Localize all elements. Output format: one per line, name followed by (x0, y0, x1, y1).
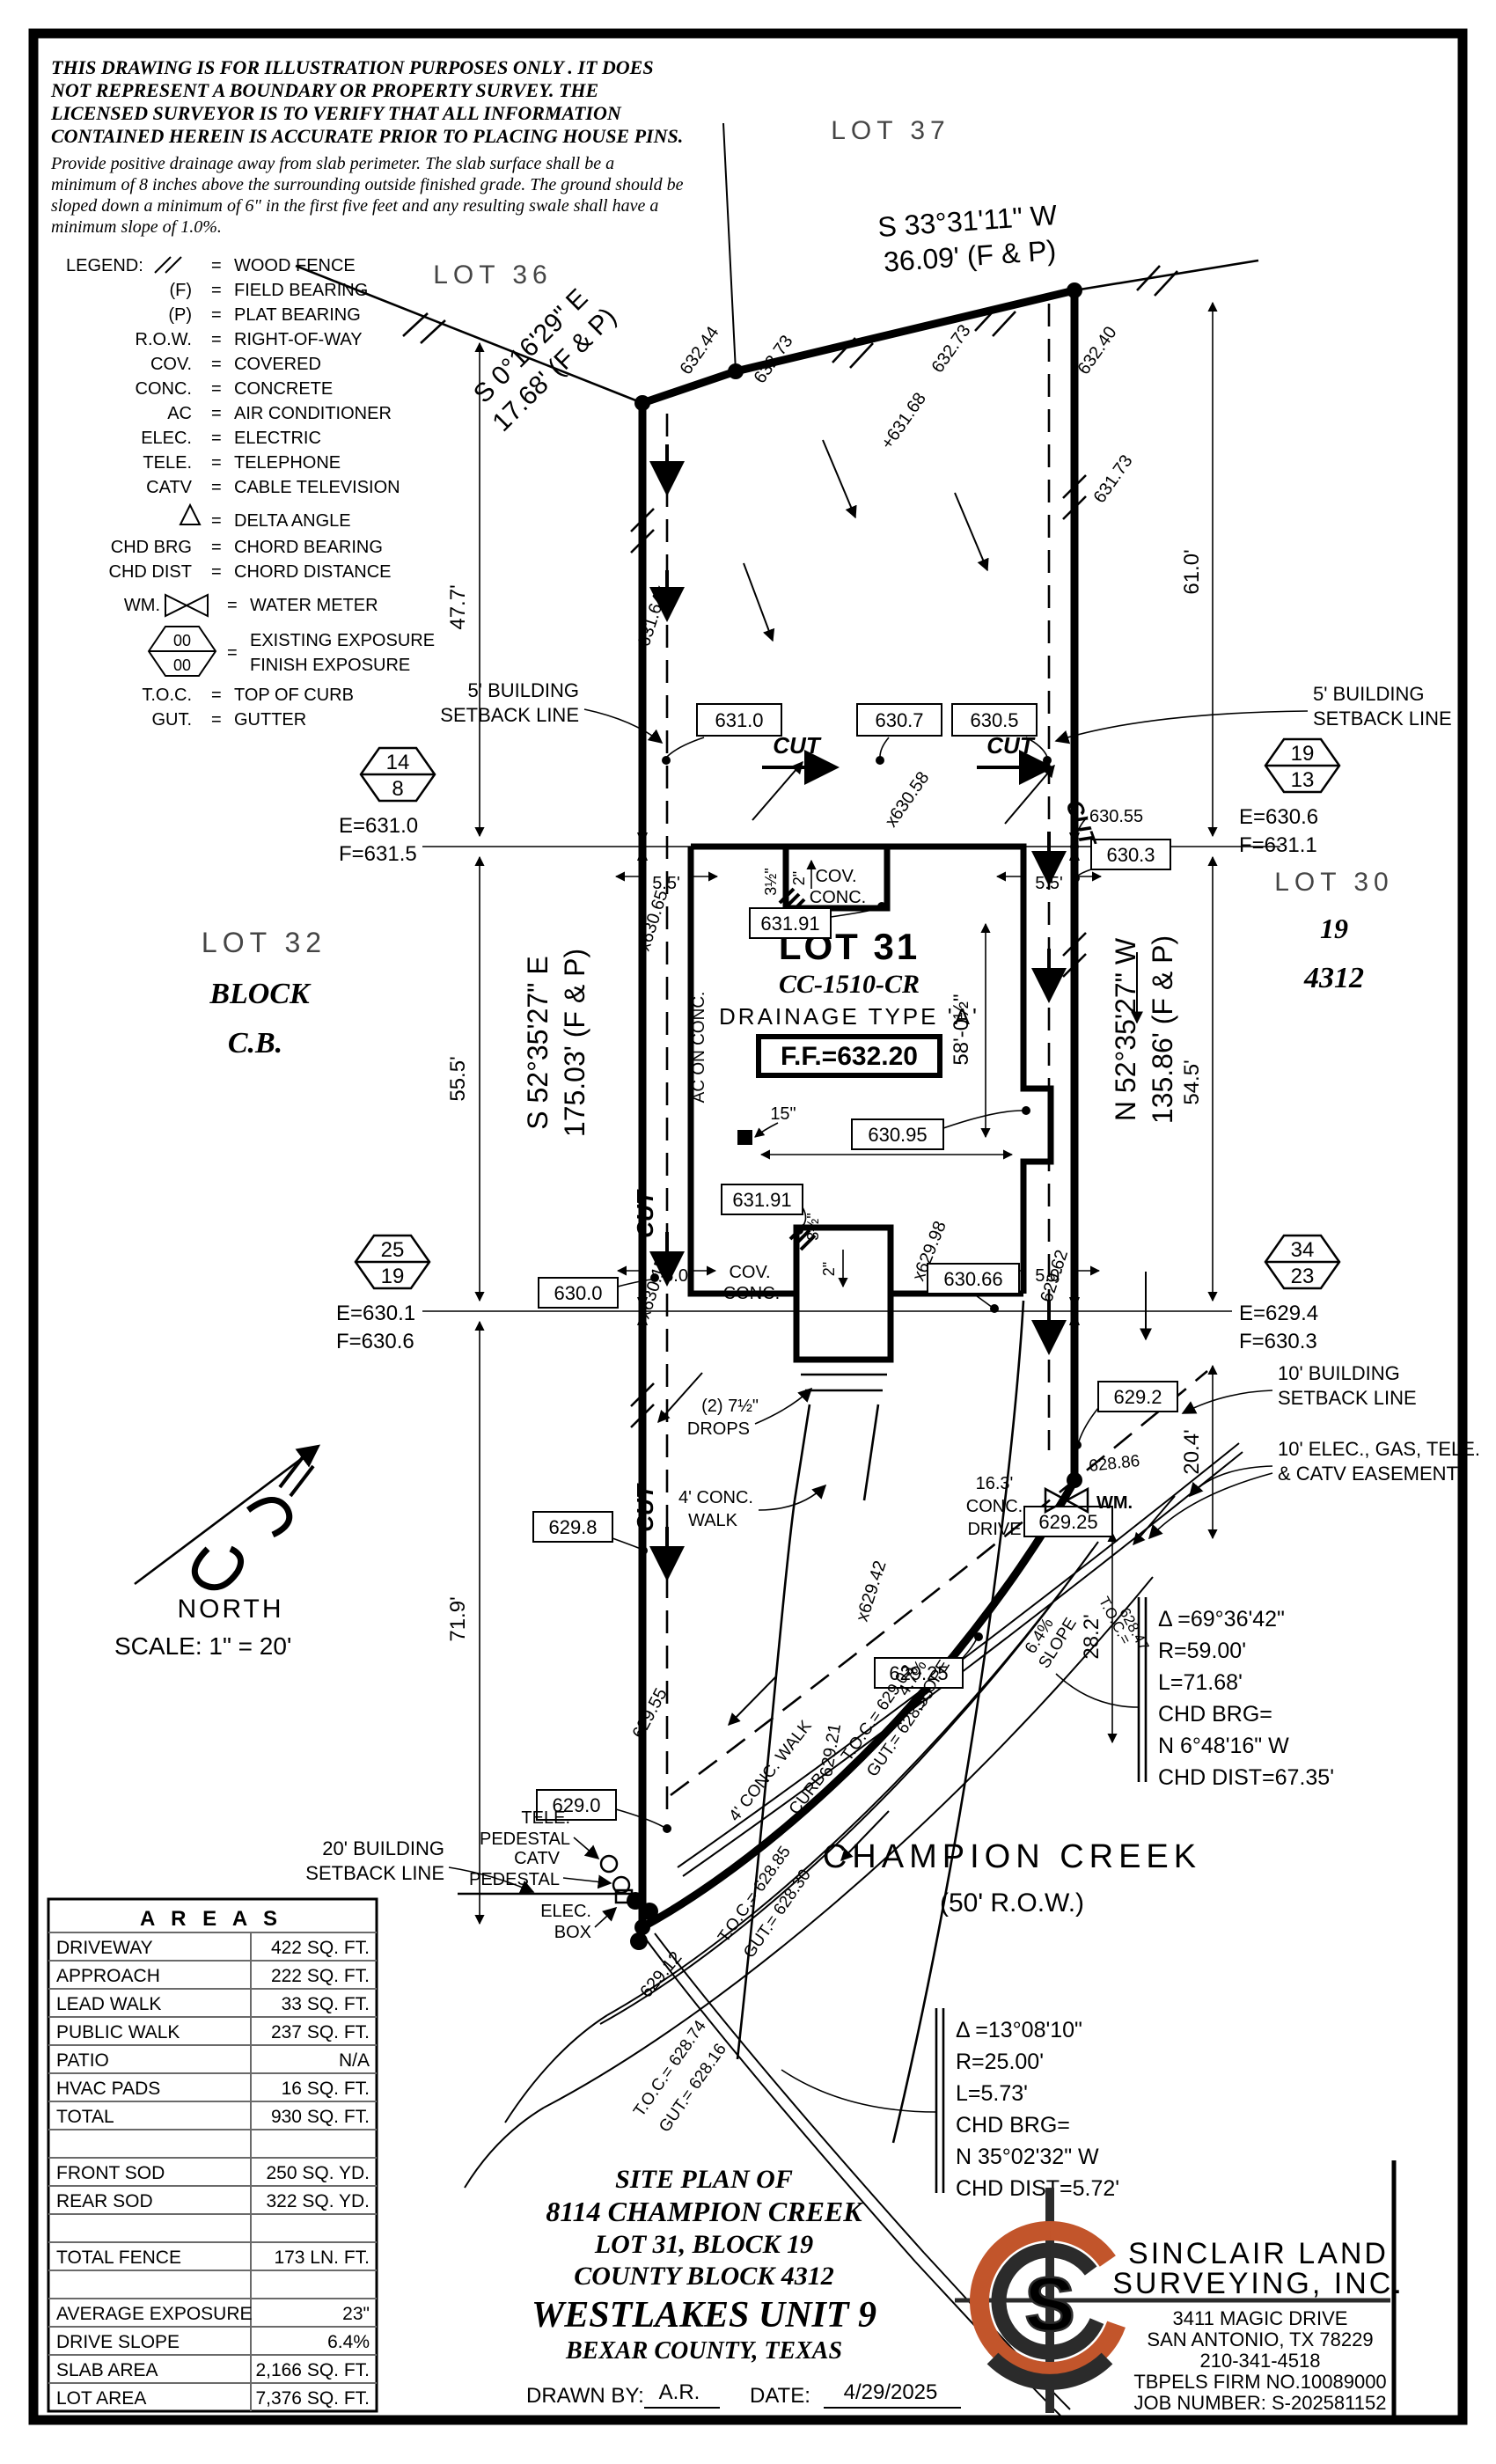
elec-label-1: ELEC. (540, 1902, 591, 1921)
legend-eq-9: = (211, 478, 222, 497)
lot30-block: 19 (1320, 913, 1348, 944)
setback10-2: SETBACK LINE (1278, 1387, 1417, 1409)
cut-label-2: CUT (986, 732, 1036, 759)
dim-58-0: 58'-0½" (950, 994, 973, 1065)
setback5-right-2: SETBACK LINE (1313, 708, 1452, 730)
spot-631-73: 631.73 (1090, 451, 1137, 507)
curve1-length: L=71.68' (1158, 1670, 1243, 1695)
wm-label: WM. (1096, 1493, 1133, 1513)
drive-label-1: 16.3' (976, 1474, 1014, 1493)
steps-and-leadwalk (795, 1375, 887, 1500)
hex4-top: 34 (1291, 1238, 1315, 1262)
legend-eq-12: = (211, 562, 222, 582)
lot32-label: LOT 32 (202, 927, 326, 958)
scale-label: SCALE: 1" = 20' (114, 1632, 291, 1660)
setback5-right-1: 5' BUILDING (1313, 683, 1424, 705)
water-meter-icon (165, 595, 208, 616)
legend-eq-13: = (227, 596, 238, 615)
areas-r16-l: LOT AREA (56, 2388, 146, 2409)
legend-label-5: CONCRETE (234, 379, 333, 399)
title-line-6: BEXAR COUNTY, TEXAS (565, 2337, 842, 2365)
hex-19-13: 1913 E=630.6F=631.1 (1239, 739, 1339, 857)
dim-61-0: 61.0' (1180, 549, 1204, 594)
easement10-1: 10' ELEC., GAS, TELE. (1278, 1438, 1480, 1460)
title-line-1: SITE PLAN OF (615, 2165, 793, 2194)
legend-label-0: WOOD FENCE (234, 256, 356, 275)
hex3-top: 25 (381, 1238, 405, 1262)
curve1-brg-label: CHD BRG= (1158, 1702, 1272, 1727)
street-row: (50' R.O.W.) (940, 1888, 1084, 1918)
areas-r4-l: PATIO (56, 2050, 109, 2071)
areas-r2-l: LEAD WALK (56, 1994, 161, 2014)
hex4-f: F=630.3 (1239, 1330, 1317, 1353)
legend-eq-6: = (211, 404, 222, 423)
curve1-chd-dist: CHD DIST=67.35' (1158, 1765, 1334, 1790)
curve2-chd-dist: CHD DIST=5.72' (956, 2176, 1119, 2201)
tele-label-1: TELE. (521, 1808, 570, 1828)
legend-hex-bot: 00 (173, 656, 191, 674)
bearing-top-right: S 33°31'11" W 36.09' (F & P) (876, 199, 1061, 278)
drawn-by-label: DRAWN BY: (526, 2384, 644, 2408)
areas-r13-l: AVERAGE EXPOSURE (56, 2304, 253, 2324)
areas-r6-l: TOTAL (56, 2107, 114, 2127)
curve1-brg-value: N 6°48'16" W (1158, 1734, 1289, 1758)
spot-629-42: x629.42 (853, 1558, 891, 1624)
areas-r2-v: 33 SQ. FT. (282, 1994, 370, 2014)
company-addr-1: 3411 MAGIC DRIVE (1173, 2307, 1348, 2329)
legend-label-15: FINISH EXPOSURE (250, 656, 410, 675)
title-line-3: LOT 31, BLOCK 19 (594, 2230, 813, 2259)
disclaimer-line-2: NOT REPRESENT A BOUNDARY OR PROPERTY SUR… (50, 79, 598, 101)
legend-eq-17: = (211, 710, 222, 730)
cov-bot-1: COV. (729, 1263, 770, 1282)
spot-630-58: x630.58 (882, 768, 934, 831)
catv-label-2: PEDESTAL (469, 1870, 560, 1889)
spot-630-7: 630.7 (875, 709, 923, 731)
hex2-f: F=631.1 (1239, 833, 1317, 857)
site-plan-drawing: THIS DRAWING IS FOR ILLUSTRATION PURPOSE… (0, 0, 1496, 2464)
hex2-e: E=630.6 (1239, 805, 1318, 829)
wood-fence-icon (155, 257, 181, 273)
curve2-radius: R=25.00' (956, 2050, 1044, 2074)
legend-label-13: WATER METER (250, 596, 378, 615)
legend-abbr-13: WM. (124, 596, 160, 615)
areas-r5-l: HVAC PADS (56, 2079, 160, 2099)
areas-r4-v: N/A (339, 2050, 370, 2071)
setback20-2: SETBACK LINE (305, 1862, 444, 1884)
areas-r11-l: TOTAL FENCE (56, 2248, 181, 2268)
areas-r5-v: 16 SQ. FT. (282, 2079, 370, 2099)
company-addr-2: SAN ANTONIO, TX 78229 (1147, 2328, 1373, 2350)
curve-data-2: Δ =13°08'10" R=25.00' L=5.73' CHD BRG= N… (781, 2008, 1119, 2201)
ac-on-conc-label: AC ON CONC. (690, 992, 708, 1104)
title-line-5: WESTLAKES UNIT 9 (532, 2295, 876, 2336)
drops-label-1: (2) 7½" (701, 1397, 759, 1416)
lot30-label: LOT 30 (1274, 868, 1394, 897)
dim-54-5: 54.5' (1180, 1060, 1204, 1104)
utility-pedestals: TELE. PEDESTAL CATV PEDESTAL ELEC. BOX (469, 1808, 658, 1950)
areas-r0-v: 422 SQ. FT. (271, 1938, 370, 1958)
lot31-plan-code: CC-1510-CR (779, 970, 920, 999)
legend: LEGEND: =WOOD FENCE (F)=FIELD BEARING (P… (66, 256, 435, 730)
elec-label-2: BOX (554, 1923, 591, 1942)
setback5-left-1: 5' BUILDING (468, 679, 579, 701)
disclaimer-text: THIS DRAWING IS FOR ILLUSTRATION PURPOSE… (50, 56, 683, 147)
company-info: SINCLAIR LAND SURVEYING, INC. 3411 MAGIC… (1112, 2160, 1404, 2418)
note-line-4: minimum slope of 1.0%. (51, 217, 222, 237)
spot-632-44: 632.44 (677, 323, 723, 378)
legend-label-7: ELECTRIC (234, 429, 321, 448)
legend-label-1: FIELD BEARING (234, 281, 368, 300)
drops-label-2: DROPS (687, 1419, 750, 1439)
spot-629-55: 629.55 (629, 1685, 671, 1742)
areas-r3-l: PUBLIC WALK (56, 2022, 180, 2042)
legend-abbr-6: AC (167, 404, 192, 423)
hex-14-8: 148 E=631.0F=631.5 (339, 748, 435, 866)
dim-15in: 15" (770, 1104, 796, 1124)
areas-r6-v: 930 SQ. FT. (271, 2107, 370, 2127)
company-firm-no: TBPELS FIRM NO.10089000 (1133, 2371, 1386, 2393)
title-block: SITE PLAN OF 8114 CHAMPION CREEK LOT 31,… (526, 2165, 961, 2408)
areas-r9-v: 322 SQ. YD. (266, 2191, 370, 2211)
bearing-w-2: 175.03' (F & P) (559, 949, 590, 1137)
setback5-left-2: SETBACK LINE (440, 704, 579, 726)
legend-abbr-7: ELEC. (141, 429, 192, 448)
north-label: NORTH (177, 1595, 283, 1624)
curve2-brg-label: CHD BRG= (956, 2113, 1070, 2138)
lot37-label: LOT 37 (831, 116, 950, 145)
legend-eq-16: = (211, 686, 222, 705)
hex-25-19: 2519 E=630.1F=630.6 (336, 1236, 429, 1353)
spot-630-5: 630.5 (970, 709, 1018, 731)
three-half-top: 3½" (762, 868, 780, 895)
areas-r1-l: APPROACH (56, 1966, 160, 1986)
areas-r1-v: 222 SQ. FT. (271, 1966, 370, 1986)
curve1-radius: R=59.00' (1158, 1639, 1246, 1663)
hex1-f: F=631.5 (339, 842, 417, 866)
spot-630-55: 630.55 (1089, 807, 1143, 826)
legend-eq-4: = (211, 355, 222, 374)
hex4-bot: 23 (1291, 1265, 1315, 1288)
cut-label-1: CUT (773, 732, 822, 759)
tele-label-2: PEDESTAL (480, 1830, 570, 1849)
survey-sheet: THIS DRAWING IS FOR ILLUSTRATION PURPOSE… (0, 0, 1496, 2464)
legend-abbr-4: COV. (150, 355, 192, 374)
areas-r16-v: 7,376 SQ. FT. (255, 2388, 370, 2409)
hex-34-23: 3423 E=629.4F=630.3 (1239, 1236, 1339, 1353)
legend-label-4: COVERED (234, 355, 321, 374)
legend-abbr-2: (P) (168, 305, 192, 325)
legend-abbr-3: R.O.W. (136, 330, 192, 349)
disclaimer-line-3: LICENSED SURVEYOR IS TO VERIFY THAT ALL … (50, 102, 622, 124)
legend-eq-2: = (211, 305, 222, 325)
areas-r8-v: 250 SQ. YD. (266, 2163, 370, 2183)
walk-label-2: WALK (688, 1511, 738, 1530)
areas-title: A R E A S (140, 1907, 282, 1931)
cut-label-5: CUT (632, 1483, 658, 1532)
catv-label-1: CATV (514, 1849, 561, 1868)
legend-eq-5: = (211, 379, 222, 399)
exposure-hex-icon: 00 00 (149, 627, 216, 676)
legend-abbr-1: (F) (169, 281, 192, 300)
setback20-1: 20' BUILDING (322, 1837, 444, 1859)
drawn-by-value: A.R. (659, 2380, 700, 2404)
dim-20-4: 20.4' (1180, 1429, 1204, 1474)
spot-629-8: 629.8 (548, 1516, 597, 1538)
legend-eq-10: = (211, 511, 222, 531)
wall-hatch-15in (737, 1130, 752, 1145)
north-arrow (135, 1446, 319, 1588)
bearing-e-2: 135.86' (F & P) (1147, 935, 1178, 1124)
areas-r14-l: DRIVE SLOPE (56, 2332, 180, 2352)
areas-table: A R E A S DRIVEWAY422 SQ. FT. APPROACH22… (48, 1899, 377, 2411)
hex2-bot: 13 (1291, 768, 1315, 792)
cov-top-2: CONC. (810, 888, 866, 907)
tele-pedestal-icon (601, 1856, 617, 1872)
bearing-w-1: S 52°35'27" E (522, 956, 554, 1130)
setback10-1: 10' BUILDING (1278, 1362, 1400, 1384)
two-in-bot: 2" (820, 1262, 838, 1276)
lot36-label: LOT 36 (433, 260, 553, 290)
spot-630-0: 630.0 (554, 1282, 602, 1304)
date-label: DATE: (750, 2384, 810, 2408)
curve2-brg-value: N 35°02'32" W (956, 2145, 1099, 2169)
hex3-bot: 19 (381, 1265, 405, 1288)
legend-abbr-16: T.O.C. (142, 686, 192, 705)
legend-label-8: TELEPHONE (234, 453, 341, 473)
spot-629-2: 629.2 (1113, 1386, 1162, 1408)
title-line-4: COUNTY BLOCK 4312 (574, 2262, 834, 2291)
drive-label-3: DRIVE (967, 1520, 1021, 1539)
street-name: CHAMPION CREEK (823, 1838, 1201, 1875)
three-half-bot: 3½" (804, 1213, 822, 1240)
legend-label-10: DELTA ANGLE (234, 511, 351, 531)
legend-abbr-12: CHD DIST (109, 562, 192, 582)
legend-label-3: RIGHT-OF-WAY (234, 330, 363, 349)
drive-label-2: CONC. (966, 1497, 1023, 1516)
areas-r15-l: SLAB AREA (56, 2360, 158, 2380)
legend-abbr-11: CHD BRG (111, 538, 192, 557)
spot-631-0: 631.0 (715, 709, 763, 731)
two-in-top: 2" (790, 871, 808, 885)
legend-label-6: AIR CONDITIONER (234, 404, 392, 423)
legend-abbr-8: TELE. (143, 453, 192, 473)
hex3-e: E=630.1 (336, 1302, 415, 1325)
spot-631-91-top: 631.91 (760, 913, 819, 935)
ff-elevation: F.F.=632.20 (781, 1042, 918, 1071)
lot30-county-block: 4312 (1303, 962, 1364, 994)
legend-title: LEGEND: (66, 256, 143, 275)
dim-55-5: 55.5' (446, 1056, 470, 1101)
legend-eq-0: = (211, 256, 222, 275)
easement10-2: & CATV EASEMENT (1278, 1463, 1458, 1485)
dim-47-7: 47.7' (446, 584, 470, 629)
legend-eq-7: = (211, 429, 222, 448)
legend-eq-3: = (211, 330, 222, 349)
hex1-top: 14 (386, 751, 410, 774)
date-value: 4/29/2025 (844, 2380, 938, 2404)
disclaimer-line-4: CONTAINED HEREIN IS ACCURATE PRIOR TO PL… (51, 125, 683, 147)
hex1-bot: 8 (392, 777, 403, 801)
legend-eq-8: = (211, 453, 222, 473)
legend-label-12: CHORD DISTANCE (234, 562, 392, 582)
areas-r3-v: 237 SQ. FT. (271, 2022, 370, 2042)
lot31-drainage-type: DRAINAGE TYPE 'A' (719, 1003, 979, 1030)
legend-label-11: CHORD BEARING (234, 538, 383, 557)
company-job-number: JOB NUMBER: S-202581152 (1134, 2392, 1387, 2414)
legend-hex-top: 00 (173, 632, 191, 649)
curve1-delta: Δ =69°36'42" (1158, 1607, 1285, 1632)
areas-r14-v: 6.4% (327, 2332, 370, 2352)
lot32-block: BLOCK (209, 978, 312, 1010)
legend-abbr-9: CATV (146, 478, 193, 497)
hex1-e: E=631.0 (339, 814, 418, 838)
spot-628-86: 628.86 (1088, 1452, 1140, 1476)
bearing-top-left: S 0°16'29" E 17.68' (F & P) (464, 279, 622, 437)
cut-label-4: CUT (632, 1189, 658, 1238)
note-line-2: minimum of 8 inches above the surroundin… (51, 175, 684, 194)
spot-632-40: 632.40 (1074, 323, 1121, 378)
note-line-1: Provide positive drainage away from slab… (50, 154, 614, 173)
legend-eq-1: = (211, 281, 222, 300)
drainage-note: Provide positive drainage away from slab… (50, 154, 684, 237)
cov-bot-2: CONC. (723, 1284, 780, 1303)
logo-s-letter: S (1024, 2262, 1074, 2347)
lot32-cb: C.B. (228, 1027, 282, 1060)
legend-label-17: GUTTER (234, 710, 306, 730)
note-line-3: sloped down a minimum of 6" in the first… (51, 196, 658, 216)
areas-r8-l: FRONT SOD (56, 2163, 165, 2183)
areas-r0-l: DRIVEWAY (56, 1938, 153, 1958)
hex3-f: F=630.6 (336, 1330, 414, 1353)
spot-630-3: 630.3 (1106, 844, 1155, 866)
company-name-2: SURVEYING, INC. (1112, 2267, 1404, 2300)
walk-label-1: 4' CONC. (678, 1488, 753, 1507)
cov-top-1: COV. (815, 867, 856, 886)
curve2-delta: Δ =13°08'10" (956, 2018, 1082, 2042)
legend-label-2: PLAT BEARING (234, 305, 361, 325)
slope-64: 6.4%SLOPE (1019, 1604, 1081, 1672)
spot-632-73b: 632.73 (928, 321, 975, 377)
spot-631-68: +631.68 (877, 389, 930, 452)
legend-abbr-5: CONC. (136, 379, 192, 399)
bearing-east: N 52°35'27" W 135.86' (F & P) (1110, 935, 1178, 1124)
dim-71-9: 71.9' (446, 1596, 470, 1641)
company-name-1: SINCLAIR LAND (1128, 2237, 1389, 2270)
areas-r9-l: REAR SOD (56, 2191, 153, 2211)
legend-label-16: TOP OF CURB (234, 686, 354, 705)
legend-eq-14: = (227, 643, 238, 663)
spot-631-91-bottom: 631.91 (732, 1189, 791, 1211)
legend-label-14: EXISTING EXPOSURE (250, 631, 435, 650)
legend-eq-11: = (211, 538, 222, 557)
title-line-2: 8114 CHAMPION CREEK (546, 2196, 864, 2227)
company-phone: 210-341-4518 (1199, 2350, 1320, 2372)
curve2-length: L=5.73' (956, 2081, 1028, 2106)
areas-r11-v: 173 LN. FT. (274, 2248, 370, 2268)
bearing-west: S 52°35'27" E 175.03' (F & P) (522, 949, 590, 1137)
hex4-e: E=629.4 (1239, 1302, 1318, 1325)
areas-r13-v: 23" (342, 2304, 370, 2324)
delta-angle-icon (180, 505, 200, 524)
spot-630-95: 630.95 (868, 1124, 927, 1146)
spot-630-66: 630.66 (943, 1268, 1002, 1290)
legend-abbr-17: GUT. (151, 710, 192, 730)
hex2-top: 19 (1291, 742, 1315, 766)
spot-629-25-wm: 629.25 (1038, 1511, 1097, 1533)
dim-28-2: 28.2' (1080, 1614, 1104, 1659)
legend-label-9: CABLE TELEVISION (234, 478, 400, 497)
areas-r15-v: 2,166 SQ. FT. (255, 2360, 370, 2380)
disclaimer-line-1: THIS DRAWING IS FOR ILLUSTRATION PURPOSE… (51, 56, 654, 78)
